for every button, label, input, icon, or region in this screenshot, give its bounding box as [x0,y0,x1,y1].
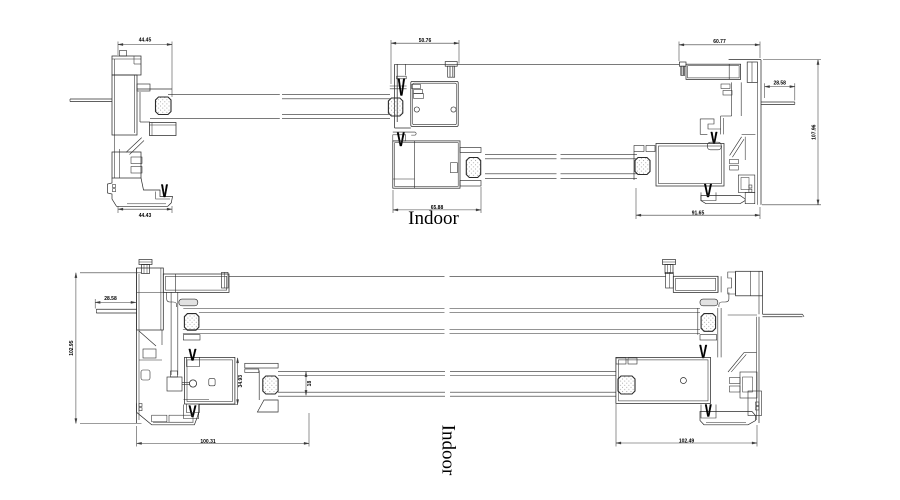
svg-text:44.45: 44.45 [139,38,152,44]
svg-text:18: 18 [307,381,313,387]
svg-text:50.76: 50.76 [419,38,432,44]
svg-text:28.58: 28.58 [773,81,786,87]
svg-text:Indoor: Indoor [438,425,459,476]
svg-text:44.43: 44.43 [139,213,152,219]
svg-text:91.65: 91.65 [692,211,705,217]
svg-text:34.93: 34.93 [238,375,244,388]
svg-text:107.96: 107.96 [812,124,818,140]
svg-text:Indoor: Indoor [408,208,459,229]
svg-text:100.31: 100.31 [200,439,216,445]
svg-text:60.77: 60.77 [713,39,726,45]
svg-text:28.58: 28.58 [104,296,117,302]
svg-text:102.95: 102.95 [69,340,75,356]
svg-text:102.49: 102.49 [679,439,695,445]
